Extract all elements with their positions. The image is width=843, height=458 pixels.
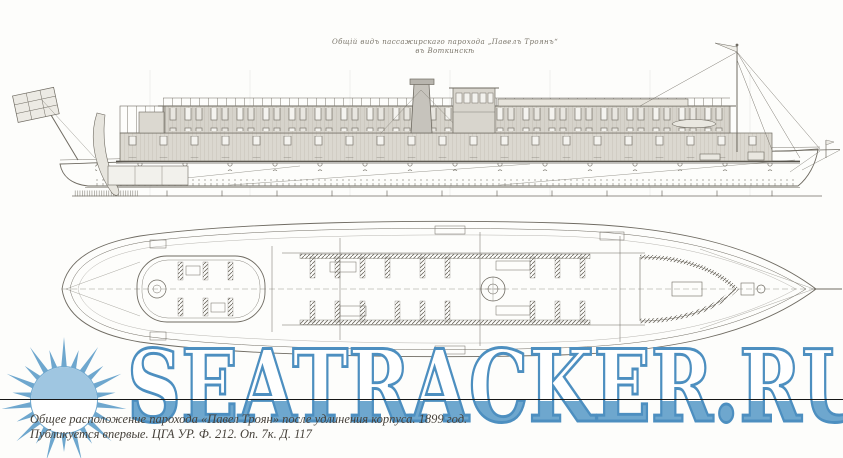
drawing-title-line-1: Общій видъ пассажирскаго парохода „Павел… (310, 38, 580, 47)
scanned-ship-plan-page: Общій видъ пассажирскаго парохода „Павел… (0, 0, 843, 458)
watermark-top-half: SEATRACKER.RU (0, 0, 843, 401)
caption-line-1: Общее расположение парохода «Павел Троян… (30, 412, 467, 427)
watermark-strike-line (0, 399, 843, 400)
drawing-title-line-2: въ Воткинскѣ (310, 47, 580, 56)
caption-block: Общее расположение парохода «Павел Троян… (30, 412, 467, 441)
drawing-title: Общій видъ пассажирскаго парохода „Павел… (310, 38, 580, 56)
caption-line-2: Публикуется впервые. ЦГА УР. Ф. 212. Оп.… (30, 427, 467, 442)
watermark-text: SEATRACKER.RU (127, 338, 843, 401)
